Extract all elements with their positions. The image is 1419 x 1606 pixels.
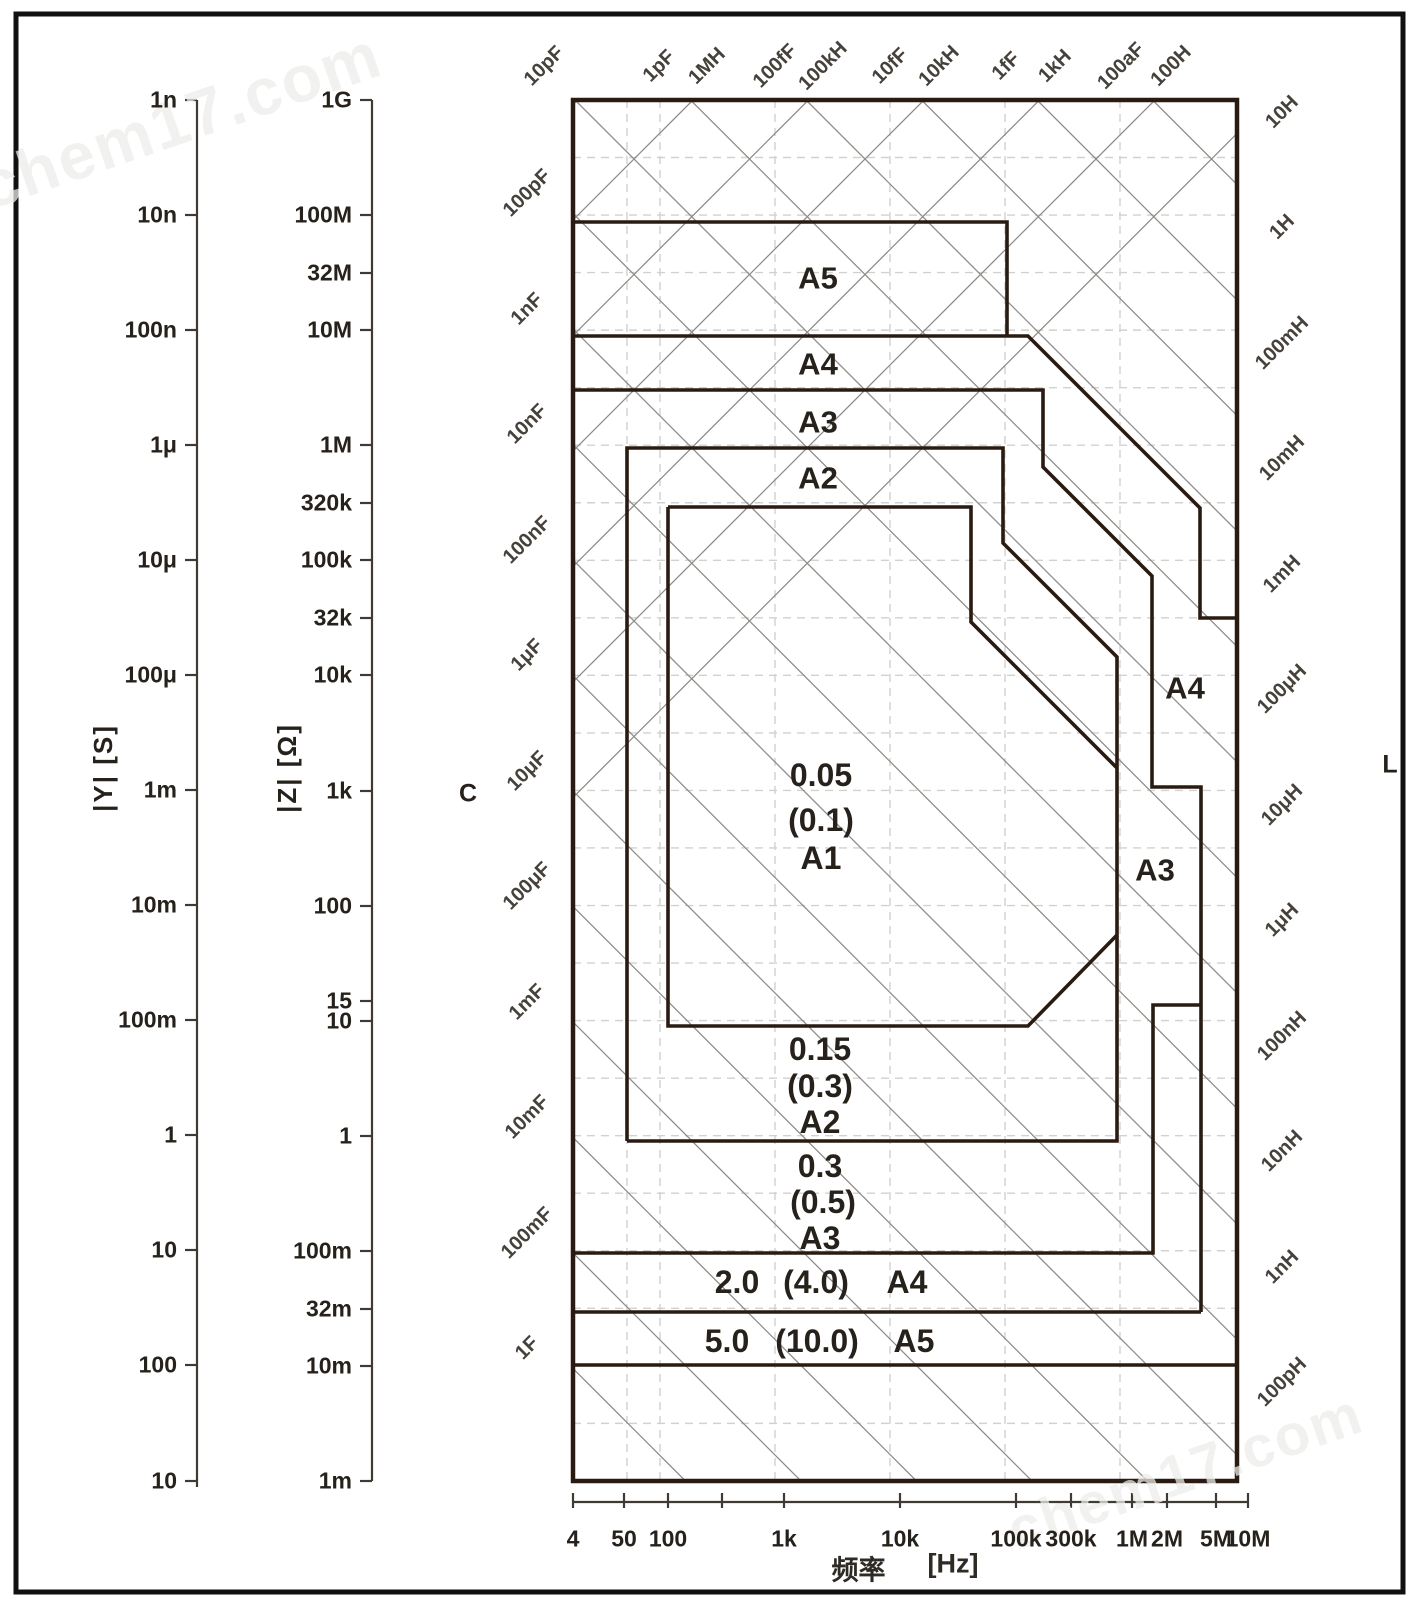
region-a5-accuracy-paren: (10.0) bbox=[775, 1325, 859, 1357]
region-a3-accuracy: 0.3 bbox=[798, 1150, 842, 1182]
a3-lower-boundary bbox=[573, 1005, 1201, 1253]
region-label-a1: A1 bbox=[801, 842, 842, 874]
region-a1-accuracy: 0.05 bbox=[790, 759, 852, 791]
region-a2-accuracy-paren: (0.3) bbox=[787, 1070, 853, 1102]
region-a4-accuracy: 2.0 bbox=[715, 1266, 759, 1298]
z-axis-tick-label: 100M bbox=[294, 204, 352, 227]
y-axis-tick-label: 1m bbox=[144, 779, 177, 802]
freq-axis-tick-label: 1M bbox=[1116, 1528, 1148, 1551]
z-axis-tick-label: 32M bbox=[307, 262, 352, 285]
region-label-a5: A5 bbox=[798, 263, 838, 294]
z-axis-tick-label: 1G bbox=[321, 89, 352, 112]
capacitance-contour-line bbox=[344, 100, 1419, 1606]
capacitance-contour-line bbox=[806, 100, 1419, 1606]
region-a5-accuracy: 5.0 bbox=[705, 1325, 749, 1357]
y-axis-tick-label: 1 bbox=[164, 1124, 177, 1147]
z-axis-tick-label: 100k bbox=[301, 549, 352, 572]
freq-axis-caption: 频率 [Hz] bbox=[832, 1549, 979, 1588]
a4-upper-boundary bbox=[573, 336, 1237, 618]
accuracy-chart-svg bbox=[0, 0, 1419, 1606]
y-axis-tick-label: 100μ bbox=[125, 664, 177, 687]
capacitance-contour-line bbox=[0, 100, 1419, 1606]
cl-contour-grid bbox=[0, 100, 1419, 1606]
region-label-a2-lower: A2 bbox=[800, 1106, 841, 1138]
y-axis-tick-label: 1μ bbox=[150, 434, 177, 457]
y-axis-tick-label: 10 bbox=[151, 1470, 177, 1493]
freq-axis-tick-label: 100k bbox=[990, 1528, 1041, 1551]
z-axis-tick-label: 10k bbox=[314, 664, 352, 687]
capacitance-contour-line bbox=[0, 100, 789, 1606]
z-axis-tick-label: 32m bbox=[306, 1298, 352, 1321]
y-axis-tick-label: 100n bbox=[125, 319, 177, 342]
region-label-a5-lower: A5 bbox=[894, 1325, 935, 1357]
inductance-contour-line bbox=[0, 100, 809, 1606]
z-axis-tick-label: 32k bbox=[314, 607, 352, 630]
inductance-contour-line bbox=[0, 100, 462, 1606]
a1-region-lower bbox=[668, 507, 1117, 1026]
y-axis-tick-label: 10μ bbox=[137, 549, 177, 572]
region-label-a2: A2 bbox=[798, 463, 838, 494]
freq-axis-tick-label: 10M bbox=[1226, 1528, 1271, 1551]
inductance-symbol: L bbox=[1382, 753, 1397, 778]
y-axis-tick-label: 100 bbox=[139, 1354, 177, 1377]
region-a4-accuracy-paren: (4.0) bbox=[783, 1266, 849, 1298]
capacitance-symbol: C bbox=[459, 782, 477, 807]
capacitance-contour-line bbox=[1037, 100, 1419, 1606]
y-axis-tick-label: 1n bbox=[150, 89, 177, 112]
freq-axis-tick-label: 1k bbox=[771, 1528, 797, 1551]
inductance-contour-line bbox=[0, 100, 578, 1606]
z-axis-tick-label: 100m bbox=[293, 1240, 352, 1263]
region-label-a3-right: A3 bbox=[1135, 855, 1175, 886]
z-axis-tick-label: 10m bbox=[306, 1355, 352, 1378]
z-axis-tick-label: 1k bbox=[326, 780, 352, 803]
z-axis-tick-label: 10M bbox=[307, 319, 352, 342]
z-axis-tick-label: 100 bbox=[314, 895, 352, 918]
freq-axis-label-cn: 频率 bbox=[832, 1549, 886, 1588]
freq-axis-tick-label: 10k bbox=[881, 1528, 919, 1551]
capacitance-contour-line bbox=[0, 100, 1419, 1606]
z-impedance-axis-name: |Z| [Ω] bbox=[274, 723, 300, 813]
freq-axis-tick-label: 50 bbox=[611, 1528, 637, 1551]
a1-region-upper bbox=[668, 507, 1117, 768]
y-axis-tick-label: 10m bbox=[131, 894, 177, 917]
z-axis-tick-label: 1M bbox=[320, 434, 352, 457]
freq-axis-tick-label: 300k bbox=[1045, 1528, 1096, 1551]
region-label-a3-lower: A3 bbox=[800, 1222, 841, 1254]
region-label-a4: A4 bbox=[798, 349, 838, 380]
y-axis-tick-label: 100m bbox=[118, 1009, 177, 1032]
region-label-a4-lower: A4 bbox=[887, 1266, 928, 1298]
y-admittance-axis-name: |Y| [S] bbox=[90, 724, 116, 812]
region-label-a4-right: A4 bbox=[1165, 673, 1205, 704]
z-axis-tick-label: 1 bbox=[339, 1125, 352, 1148]
freq-axis-tick-label: 2M bbox=[1151, 1528, 1183, 1551]
region-label-a3: A3 bbox=[798, 407, 838, 438]
region-a1-accuracy-paren: (0.1) bbox=[788, 804, 854, 836]
accuracy-chart-figure: |Y| [S] |Z| [Ω] C L 频率 [Hz] chem17.com c… bbox=[0, 0, 1419, 1606]
freq-axis-unit: [Hz] bbox=[928, 1549, 979, 1588]
region-a3-accuracy-paren: (0.5) bbox=[790, 1186, 856, 1218]
z-axis-tick-label: 1m bbox=[319, 1470, 352, 1493]
y-axis-tick-label: 10 bbox=[151, 1239, 177, 1262]
z-axis-tick-label: 320k bbox=[301, 492, 352, 515]
a2-region-outline bbox=[627, 448, 1117, 1141]
freq-axis-tick-label: 100 bbox=[649, 1528, 687, 1551]
z-axis-tick-label: 10 bbox=[326, 1010, 352, 1033]
region-a2-accuracy: 0.15 bbox=[789, 1033, 851, 1065]
y-axis-tick-label: 10n bbox=[137, 204, 177, 227]
freq-axis-tick-label: 4 bbox=[567, 1528, 580, 1551]
